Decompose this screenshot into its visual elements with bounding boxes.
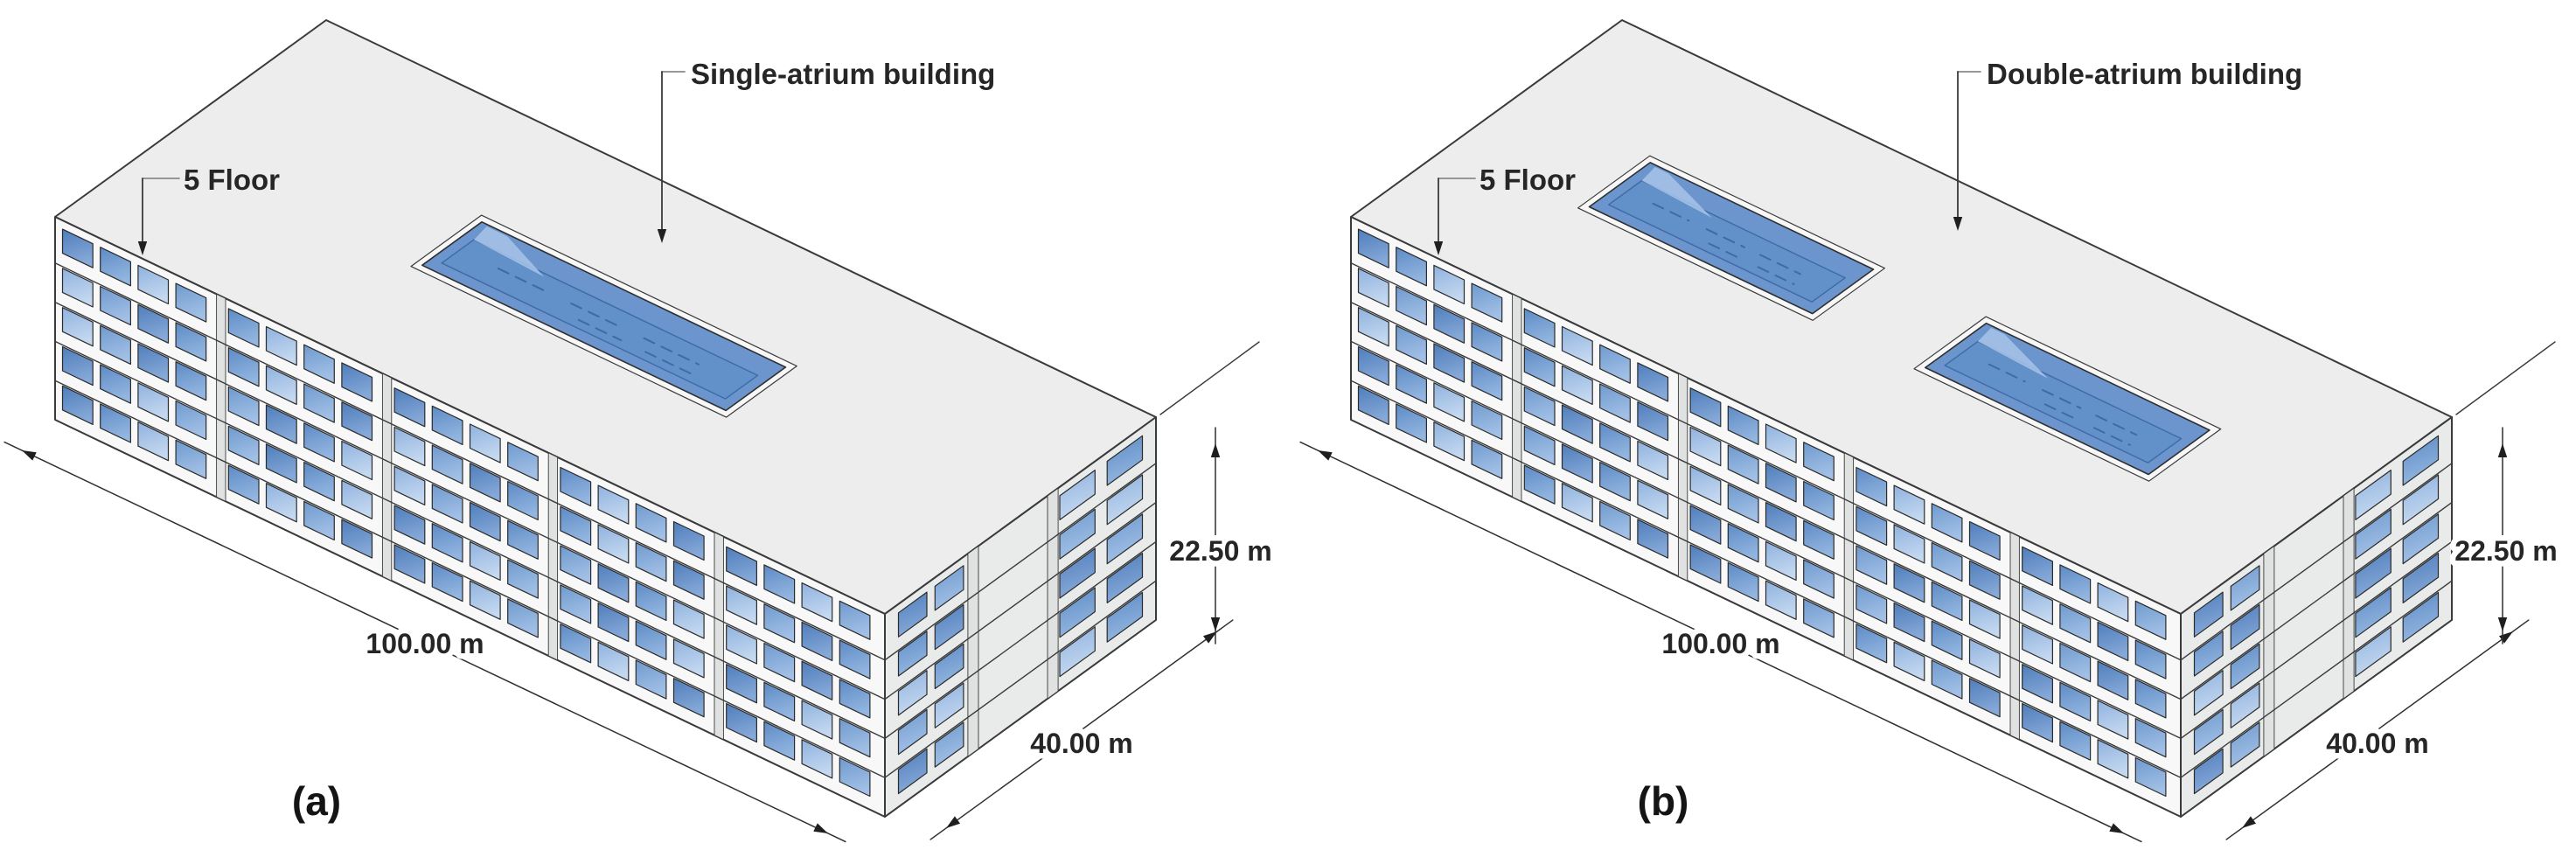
dimension-width-arrow-start bbox=[946, 816, 960, 828]
type-label-a: Single-atrium building bbox=[691, 58, 995, 90]
generated-geometry-layer bbox=[4, 20, 2555, 841]
front-bay-mullion bbox=[714, 533, 723, 740]
front-bay-mullion bbox=[1513, 294, 1521, 501]
dimension-height-arrow-bottom bbox=[2498, 617, 2507, 631]
front-bay-mullion bbox=[382, 373, 391, 581]
front-bay-mullion bbox=[2010, 533, 2019, 740]
type-label-b: Double-atrium building bbox=[1987, 58, 2302, 90]
end-bay-mullion bbox=[2343, 488, 2354, 699]
dimension-height-arrow-top bbox=[2498, 443, 2507, 457]
caption-b: (b) bbox=[1638, 778, 1689, 824]
isometric-figure-canvas: 5 Floor Single-atrium building 100.00 m … bbox=[0, 0, 2576, 864]
front-bay-mullion bbox=[1844, 453, 1853, 660]
dimension-width-arrow-start bbox=[2242, 816, 2256, 828]
floors-label-b: 5 Floor bbox=[1479, 164, 1576, 196]
front-bay-mullion bbox=[217, 294, 226, 501]
front-bay-mullion bbox=[548, 453, 557, 660]
front-bay-mullion bbox=[1678, 373, 1687, 581]
dimension-height-arrow-bottom bbox=[1211, 617, 1220, 631]
building-b-double-atrium bbox=[1300, 20, 2555, 841]
dim-width-label-a: 40.00 m bbox=[1030, 728, 1132, 759]
caption-a: (a) bbox=[292, 778, 341, 824]
end-bay-mullion bbox=[1048, 488, 1058, 699]
dimension-length-arrow-end bbox=[813, 823, 828, 833]
dim-height-label-b: 22.50 m bbox=[2454, 535, 2557, 567]
dimension-length-arrow-start bbox=[1318, 450, 1333, 461]
end-bay-mullion bbox=[968, 546, 978, 756]
floors-label-a: 5 Floor bbox=[184, 164, 280, 196]
dimension-height-arrow-top bbox=[1211, 443, 1220, 457]
dimension-height-extension bbox=[1160, 342, 1259, 415]
dimension-length-arrow-start bbox=[22, 450, 37, 461]
dimension-width-arrow-end bbox=[2499, 631, 2513, 644]
dim-length-label-a: 100.00 m bbox=[366, 628, 484, 659]
building-a-single-atrium bbox=[4, 20, 1259, 841]
dim-height-label-a: 22.50 m bbox=[1169, 535, 1271, 567]
dimension-height-extension bbox=[2456, 342, 2555, 415]
dim-width-label-b: 40.00 m bbox=[2326, 728, 2428, 759]
figure-two-atrium-buildings: 5 Floor Single-atrium building 100.00 m … bbox=[0, 0, 2576, 864]
end-bay-mullion bbox=[2264, 546, 2274, 756]
dim-length-label-b: 100.00 m bbox=[1661, 628, 1779, 659]
dimension-length-arrow-end bbox=[2109, 823, 2124, 833]
